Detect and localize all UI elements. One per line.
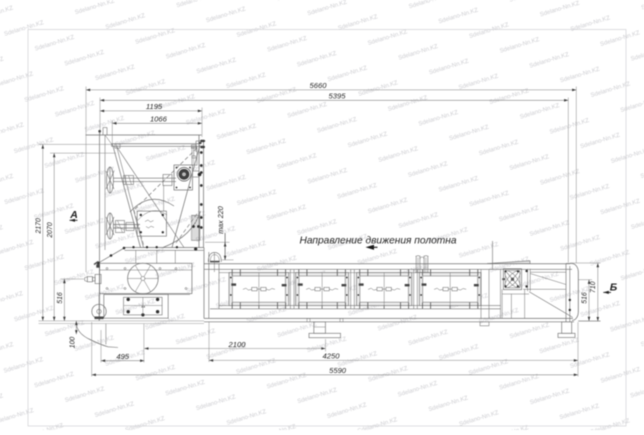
svg-text:Sdelano-Nn.KZ: Sdelano-Nn.KZ — [570, 15, 611, 33]
svg-text:Sdelano-Nn.KZ: Sdelano-Nn.KZ — [589, 250, 630, 268]
svg-text:Sdelano-Nn.KZ: Sdelano-Nn.KZ — [559, 67, 600, 85]
svg-text:Sdelano-Nn.KZ: Sdelano-Nn.KZ — [337, 183, 378, 201]
svg-text:Sdelano-Nn.KZ: Sdelano-Nn.KZ — [54, 101, 95, 119]
svg-text:Sdelano-Nn.KZ: Sdelano-Nn.KZ — [276, 153, 317, 171]
svg-text:Sdelano-Nn.KZ: Sdelano-Nn.KZ — [196, 57, 237, 75]
svg-text:Sdelano-Nn.KZ: Sdelano-Nn.KZ — [468, 359, 509, 377]
svg-text:Sdelano-Nn.KZ: Sdelano-Nn.KZ — [408, 161, 449, 179]
svg-text:Sdelano-Nn.KZ: Sdelano-Nn.KZ — [610, 147, 644, 165]
svg-text:Sdelano-Nn.KZ: Sdelano-Nn.KZ — [266, 373, 307, 391]
svg-text:516: 516 — [582, 292, 589, 304]
svg-text:Sdelano-Nn.KZ: Sdelano-Nn.KZ — [84, 284, 125, 302]
svg-text:Sdelano-Nn.KZ: Sdelano-Nn.KZ — [428, 58, 469, 76]
svg-text:Sdelano-Nn.KZ: Sdelano-Nn.KZ — [4, 20, 45, 38]
svg-text:Sdelano-Nn.KZ: Sdelano-Nn.KZ — [438, 7, 479, 25]
svg-text:Sdelano-Nn.KZ: Sdelano-Nn.KZ — [408, 329, 449, 347]
svg-text:Sdelano-Nn.KZ: Sdelano-Nn.KZ — [458, 242, 499, 260]
svg-text:Sdelano-Nn.KZ: Sdelano-Nn.KZ — [449, 124, 490, 142]
svg-text:Sdelano-Nn.KZ: Sdelano-Nn.KZ — [459, 410, 500, 428]
svg-text:Sdelano-Nn.KZ: Sdelano-Nn.KZ — [549, 118, 590, 136]
svg-text:Sdelano-Nn.KZ: Sdelano-Nn.KZ — [358, 80, 399, 98]
svg-text:Sdelano-Nn.KZ: Sdelano-Nn.KZ — [398, 44, 439, 62]
svg-text:710: 710 — [590, 281, 597, 293]
svg-text:Sdelano-Nn.KZ: Sdelano-Nn.KZ — [74, 335, 115, 353]
svg-text:Sdelano-Nn.KZ: Sdelano-Nn.KZ — [206, 175, 247, 193]
svg-text:Sdelano-Nn.KZ: Sdelano-Nn.KZ — [176, 0, 217, 9]
svg-text:Sdelano-Nn.KZ: Sdelano-Nn.KZ — [44, 0, 85, 2]
svg-text:2070: 2070 — [47, 222, 54, 238]
svg-text:Sdelano-Nn.KZ: Sdelano-Nn.KZ — [630, 45, 644, 63]
svg-text:Sdelano-Nn.KZ: Sdelano-Nn.KZ — [640, 162, 644, 180]
svg-text:Sdelano-Nn.KZ: Sdelano-Nn.KZ — [438, 176, 479, 194]
svg-text:Sdelano-Nn.KZ: Sdelano-Nn.KZ — [296, 51, 337, 69]
svg-text:Sdelano-Nn.KZ: Sdelano-Nn.KZ — [24, 254, 65, 272]
svg-text:Sdelano-Nn.KZ: Sdelano-Nn.KZ — [307, 0, 348, 17]
svg-text:Sdelano-Nn.KZ: Sdelano-Nn.KZ — [0, 56, 5, 74]
svg-text:Sdelano-Nn.KZ: Sdelano-Nn.KZ — [226, 409, 267, 427]
svg-text:Sdelano-Nn.KZ: Sdelano-Nn.KZ — [64, 386, 105, 404]
svg-text:Sdelano-Nn.KZ: Sdelano-Nn.KZ — [13, 137, 54, 155]
svg-text:Sdelano-Nn.KZ: Sdelano-Nn.KZ — [125, 79, 166, 97]
svg-text:Sdelano-Nn.KZ: Sdelano-Nn.KZ — [166, 211, 207, 229]
svg-text:Sdelano-Nn.KZ: Sdelano-Nn.KZ — [469, 22, 510, 40]
svg-text:Sdelano-Nn.KZ: Sdelano-Nn.KZ — [620, 96, 644, 114]
svg-text:Sdelano-Nn.KZ: Sdelano-Nn.KZ — [569, 184, 610, 202]
svg-text:Sdelano-Nn.KZ: Sdelano-Nn.KZ — [539, 1, 580, 19]
svg-text:Sdelano-Nn.KZ: Sdelano-Nn.KZ — [185, 109, 226, 127]
svg-text:Sdelano-Nn.KZ: Sdelano-Nn.KZ — [0, 342, 15, 360]
svg-text:Sdelano-Nn.KZ: Sdelano-Nn.KZ — [428, 395, 469, 413]
svg-text:Sdelano-Nn.KZ: Sdelano-Nn.KZ — [216, 123, 257, 141]
svg-text:Sdelano-Nn.KZ: Sdelano-Nn.KZ — [327, 65, 368, 83]
svg-text:Sdelano-Nn.KZ: Sdelano-Nn.KZ — [0, 174, 14, 192]
svg-text:max 220: max 220 — [216, 206, 225, 234]
svg-text:Sdelano-Nn.KZ: Sdelano-Nn.KZ — [125, 416, 166, 430]
svg-text:Sdelano-Nn.KZ: Sdelano-Nn.KZ — [0, 408, 35, 426]
svg-text:100: 100 — [69, 337, 76, 349]
svg-text:Sdelano-Nn.KZ: Sdelano-Nn.KZ — [499, 37, 540, 55]
svg-text:Sdelano-Nn.KZ: Sdelano-Nn.KZ — [145, 145, 186, 163]
svg-text:Sdelano-Nn.KZ: Sdelano-Nn.KZ — [489, 88, 530, 106]
svg-text:Sdelano-Nn.KZ: Sdelano-Nn.KZ — [529, 220, 570, 238]
svg-text:Sdelano-Nn.KZ: Sdelano-Nn.KZ — [600, 30, 641, 48]
svg-text:Sdelano-Nn.KZ: Sdelano-Nn.KZ — [205, 6, 246, 24]
svg-text:Sdelano-Nn.KZ: Sdelano-Nn.KZ — [135, 28, 176, 46]
svg-text:Sdelano-Nn.KZ: Sdelano-Nn.KZ — [317, 117, 358, 135]
svg-text:Sdelano-Nn.KZ: Sdelano-Nn.KZ — [357, 417, 398, 430]
svg-text:Б: Б — [610, 282, 618, 294]
svg-text:Sdelano-Nn.KZ: Sdelano-Nn.KZ — [509, 322, 550, 340]
svg-text:Sdelano-Nn.KZ: Sdelano-Nn.KZ — [266, 204, 307, 222]
svg-text:Sdelano-Nn.KZ: Sdelano-Nn.KZ — [44, 152, 85, 170]
svg-text:Sdelano-Nn.KZ: Sdelano-Nn.KZ — [297, 387, 338, 405]
svg-text:516: 516 — [57, 292, 64, 304]
svg-text:Sdelano-Nn.KZ: Sdelano-Nn.KZ — [84, 116, 125, 134]
svg-text:Sdelano-Nn.KZ: Sdelano-Nn.KZ — [519, 103, 560, 121]
svg-text:Sdelano-Nn.KZ: Sdelano-Nn.KZ — [600, 198, 641, 216]
svg-text:Sdelano-Nn.KZ: Sdelano-Nn.KZ — [105, 13, 146, 31]
svg-text:Sdelano-Nn.KZ: Sdelano-Nn.KZ — [246, 138, 287, 156]
svg-text:Sdelano-Nn.KZ: Sdelano-Nn.KZ — [24, 86, 65, 104]
svg-text:Sdelano-Nn.KZ: Sdelano-Nn.KZ — [175, 328, 216, 346]
svg-text:Sdelano-Nn.KZ: Sdelano-Nn.KZ — [135, 365, 176, 383]
svg-text:Sdelano-Nn.KZ: Sdelano-Nn.KZ — [539, 337, 580, 355]
svg-text:Sdelano-Nn.KZ: Sdelano-Nn.KZ — [155, 262, 196, 280]
svg-text:Направление движения полотна: Направление движения полотна — [299, 235, 456, 246]
svg-text:Sdelano-Nn.KZ: Sdelano-Nn.KZ — [418, 110, 459, 128]
svg-text:Sdelano-Nn.KZ: Sdelano-Nn.KZ — [367, 29, 408, 47]
svg-text:Sdelano-Nn.KZ: Sdelano-Nn.KZ — [499, 374, 540, 392]
svg-text:Sdelano-Nn.KZ: Sdelano-Nn.KZ — [4, 188, 45, 206]
svg-text:Sdelano-Nn.KZ: Sdelano-Nn.KZ — [326, 402, 367, 420]
svg-text:Sdelano-Nn.KZ: Sdelano-Nn.KZ — [23, 423, 64, 430]
svg-text:Sdelano-Nn.KZ: Sdelano-Nn.KZ — [75, 167, 116, 185]
svg-text:Sdelano-Nn.KZ: Sdelano-Nn.KZ — [307, 168, 348, 186]
svg-text:Sdelano-Nn.KZ: Sdelano-Nn.KZ — [509, 0, 550, 4]
svg-text:Sdelano-Nn.KZ: Sdelano-Nn.KZ — [94, 401, 135, 419]
svg-text:Sdelano-Nn.KZ: Sdelano-Nn.KZ — [115, 299, 156, 317]
svg-text:Sdelano-Nn.KZ: Sdelano-Nn.KZ — [0, 122, 25, 140]
svg-text:Sdelano-Nn.KZ: Sdelano-Nn.KZ — [34, 35, 75, 53]
svg-text:4250: 4250 — [323, 351, 341, 360]
svg-text:Sdelano-Nn.KZ: Sdelano-Nn.KZ — [277, 321, 318, 339]
svg-text:1066: 1066 — [150, 115, 168, 124]
svg-text:Sdelano-Nn.KZ: Sdelano-Nn.KZ — [145, 314, 186, 332]
svg-text:Sdelano-Nn.KZ: Sdelano-Nn.KZ — [54, 269, 95, 287]
svg-text:Sdelano-Nn.KZ: Sdelano-Nn.KZ — [165, 380, 206, 398]
svg-text:Sdelano-Nn.KZ: Sdelano-Nn.KZ — [600, 367, 641, 385]
svg-text:Sdelano-Nn.KZ: Sdelano-Nn.KZ — [226, 241, 267, 259]
svg-text:Sdelano-Nn.KZ: Sdelano-Nn.KZ — [438, 344, 479, 362]
svg-text:Sdelano-Nn.KZ: Sdelano-Nn.KZ — [95, 64, 136, 82]
svg-text:Sdelano-Nn.KZ: Sdelano-Nn.KZ — [236, 189, 277, 207]
svg-text:Sdelano-Nn.KZ: Sdelano-Nn.KZ — [509, 154, 550, 172]
svg-text:Sdelano-Nn.KZ: Sdelano-Nn.KZ — [580, 132, 621, 150]
svg-text:Sdelano-Nn.KZ: Sdelano-Nn.KZ — [34, 372, 75, 390]
svg-text:Sdelano-Nn.KZ: Sdelano-Nn.KZ — [0, 5, 14, 23]
svg-text:Sdelano-Nn.KZ: Sdelano-Nn.KZ — [64, 50, 105, 68]
svg-text:Sdelano-Nn.KZ: Sdelano-Nn.KZ — [0, 240, 35, 258]
svg-text:Sdelano-Nn.KZ: Sdelano-Nn.KZ — [236, 21, 277, 39]
svg-text:Sdelano-Nn.KZ: Sdelano-Nn.KZ — [408, 0, 449, 10]
svg-text:Sdelano-Nn.KZ: Sdelano-Nn.KZ — [529, 52, 570, 70]
svg-text:5660: 5660 — [310, 81, 328, 90]
svg-text:Sdelano-Nn.KZ: Sdelano-Nn.KZ — [3, 357, 44, 375]
svg-text:Sdelano-Nn.KZ: Sdelano-Nn.KZ — [397, 381, 438, 399]
svg-text:Sdelano-Nn.KZ: Sdelano-Nn.KZ — [226, 72, 267, 90]
svg-text:Sdelano-Nn.KZ: Sdelano-Nn.KZ — [640, 330, 644, 348]
svg-text:Sdelano-Nn.KZ: Sdelano-Nn.KZ — [0, 393, 4, 411]
svg-text:Sdelano-Nn.KZ: Sdelano-Nn.KZ — [458, 73, 499, 91]
svg-text:Sdelano-Nn.KZ: Sdelano-Nn.KZ — [115, 130, 156, 148]
svg-text:Sdelano-Nn.KZ: Sdelano-Nn.KZ — [267, 36, 308, 54]
svg-text:Sdelano-Nn.KZ: Sdelano-Nn.KZ — [276, 0, 317, 3]
svg-text:Sdelano-Nn.KZ: Sdelano-Nn.KZ — [630, 382, 644, 400]
svg-text:Sdelano-Nn.KZ: Sdelano-Nn.KZ — [559, 403, 600, 421]
svg-text:Sdelano-Nn.KZ: Sdelano-Nn.KZ — [560, 235, 601, 253]
svg-text:Sdelano-Nn.KZ: Sdelano-Nn.KZ — [195, 394, 236, 412]
svg-text:5590: 5590 — [329, 366, 347, 375]
svg-text:Sdelano-Nn.KZ: Sdelano-Nn.KZ — [347, 131, 388, 149]
svg-text:Sdelano-Nn.KZ: Sdelano-Nn.KZ — [498, 205, 539, 223]
svg-text:2100: 2100 — [228, 340, 247, 349]
svg-text:5395: 5395 — [329, 92, 347, 101]
svg-text:1195: 1195 — [146, 102, 163, 111]
svg-text:Sdelano-Nn.KZ: Sdelano-Nn.KZ — [478, 139, 519, 157]
svg-text:Sdelano-Nn.KZ: Sdelano-Nn.KZ — [297, 219, 338, 237]
svg-text:Sdelano-Nn.KZ: Sdelano-Nn.KZ — [398, 212, 439, 230]
svg-text:Sdelano-Nn.KZ: Sdelano-Nn.KZ — [377, 315, 418, 333]
svg-text:Sdelano-Nn.KZ: Sdelano-Nn.KZ — [387, 95, 428, 113]
svg-text:2170: 2170 — [36, 218, 43, 234]
svg-text:Sdelano-Nn.KZ: Sdelano-Nn.KZ — [620, 264, 644, 282]
svg-text:Sdelano-Nn.KZ: Sdelano-Nn.KZ — [590, 418, 631, 430]
svg-text:Sdelano-Nn.KZ: Sdelano-Nn.KZ — [0, 225, 4, 243]
svg-text:Sdelano-Nn.KZ: Sdelano-Nn.KZ — [165, 43, 206, 61]
svg-text:Sdelano-Nn.KZ: Sdelano-Nn.KZ — [478, 308, 519, 326]
svg-text:Sdelano-Nn.KZ: Sdelano-Nn.KZ — [529, 388, 570, 406]
svg-text:Sdelano-Nn.KZ: Sdelano-Nn.KZ — [540, 169, 581, 187]
svg-text:495: 495 — [116, 352, 129, 361]
svg-text:Sdelano-Nn.KZ: Sdelano-Nn.KZ — [74, 0, 115, 16]
svg-text:Sdelano-Nn.KZ: Sdelano-Nn.KZ — [590, 81, 631, 99]
svg-text:Sdelano-Nn.KZ: Sdelano-Nn.KZ — [630, 213, 644, 231]
svg-text:Sdelano-Nn.KZ: Sdelano-Nn.KZ — [287, 102, 328, 120]
svg-text:Sdelano-Nn.KZ: Sdelano-Nn.KZ — [44, 320, 85, 338]
svg-text:Sdelano-Nn.KZ: Sdelano-Nn.KZ — [0, 291, 24, 309]
svg-text:Sdelano-Nn.KZ: Sdelano-Nn.KZ — [0, 71, 34, 89]
svg-text:Sdelano-Nn.KZ: Sdelano-Nn.KZ — [610, 316, 644, 334]
svg-text:Sdelano-Nn.KZ: Sdelano-Nn.KZ — [378, 146, 419, 164]
svg-text:Sdelano-Nn.KZ: Sdelano-Nn.KZ — [519, 271, 560, 289]
svg-text:Sdelano-Nn.KZ: Sdelano-Nn.KZ — [469, 190, 510, 208]
svg-text:Sdelano-Nn.KZ: Sdelano-Nn.KZ — [256, 424, 297, 430]
svg-text:Sdelano-Nn.KZ: Sdelano-Nn.KZ — [367, 197, 408, 215]
